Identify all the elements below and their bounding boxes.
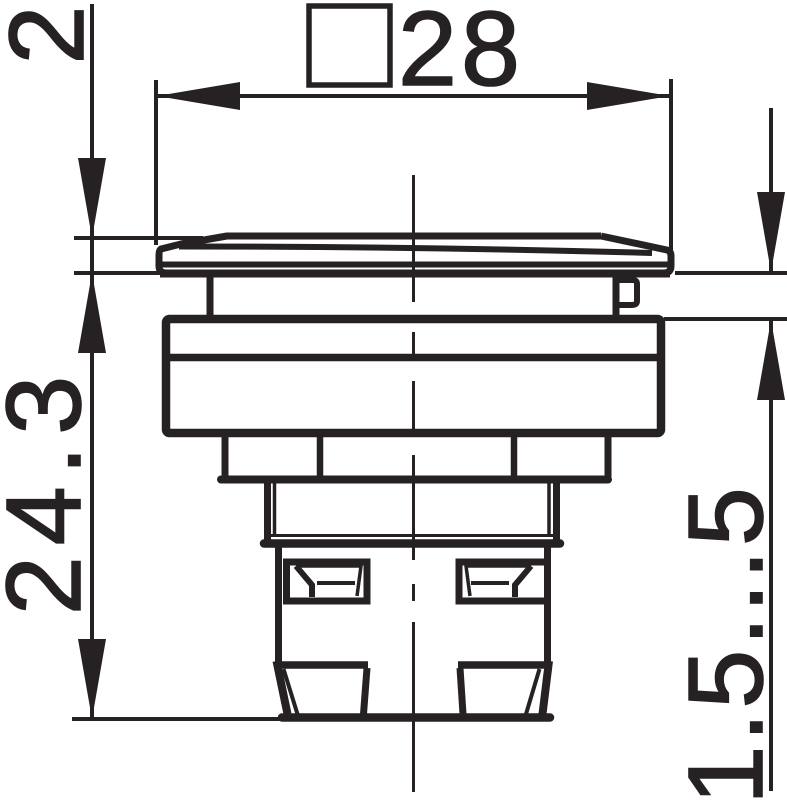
svg-text:1.5...5: 1.5...5 [667,483,785,803]
svg-text:28: 28 [398,0,524,108]
svg-text:2: 2 [0,6,106,65]
svg-text:24.3: 24.3 [0,365,103,615]
